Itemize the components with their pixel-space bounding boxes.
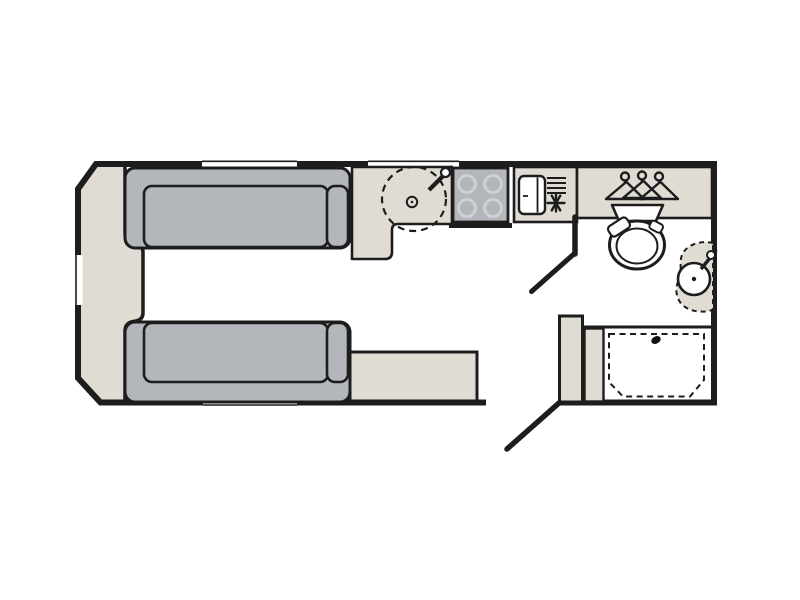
sofa-armrest <box>327 186 348 247</box>
floorplan-canvas <box>0 0 800 600</box>
hob-icon <box>449 168 512 226</box>
fridge-unit <box>514 167 577 222</box>
washbasin-icon <box>676 242 717 311</box>
washroom-door <box>532 217 576 292</box>
window-front <box>75 255 83 305</box>
entry-door <box>507 403 559 449</box>
toilet-icon <box>607 205 665 269</box>
bed-box-extension <box>350 352 477 401</box>
shower-wall <box>585 329 604 402</box>
sofa-armrest <box>327 323 348 382</box>
sofa-front-offside <box>125 168 350 248</box>
shower-room <box>560 316 713 402</box>
caravan-floorplan <box>0 0 800 600</box>
wall-stub <box>560 316 583 402</box>
sofa-front-nearside <box>125 322 350 402</box>
entry-door-gap <box>486 398 558 408</box>
